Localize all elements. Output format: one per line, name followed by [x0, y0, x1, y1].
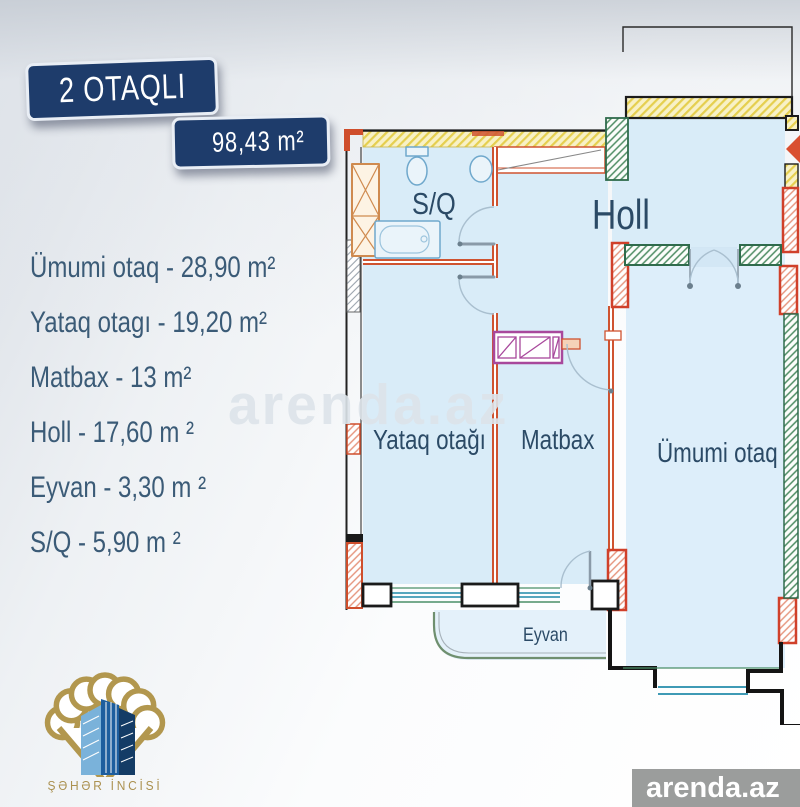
bottom-windows [363, 581, 618, 609]
total-area-label: 98,43 m² [211, 125, 304, 159]
flyer-canvas: 2 OTAQLI 98,43 m² Ümumi otaq - 28,90 m² … [0, 0, 800, 807]
label-balcony: Eyvan [523, 624, 568, 646]
beam-mark [472, 131, 504, 136]
label-bathroom: S/Q [412, 187, 456, 222]
rooms-count-badge: 2 OTAQLI [25, 57, 219, 122]
list-item: Yataq otagı - 19,20 m² [30, 295, 275, 350]
list-item: Holl - 17,60 m ² [30, 405, 275, 460]
list-item: Matbax - 13 m² [30, 350, 275, 405]
list-item: Ümumi otaq - 28,90 m² [30, 240, 275, 295]
window-jamb [592, 581, 618, 609]
sink-icon [470, 156, 492, 182]
site-brand-badge: arenda.az [632, 769, 800, 807]
toilet-tank [406, 147, 428, 156]
label-kitchen: Matbax [521, 425, 595, 456]
toilet-icon [407, 157, 427, 185]
label-hall: Holl [592, 193, 650, 239]
window-jamb [462, 584, 518, 606]
total-area-badge: 98,43 m² [171, 114, 330, 169]
agency-logo: ŞƏHƏR İNCİSİ [25, 642, 185, 802]
adjacent-unit-outline [623, 27, 792, 97]
hall-wardrobe [495, 147, 605, 173]
shell-building-logo-icon [25, 642, 185, 777]
window-jamb [363, 584, 391, 606]
agency-name: ŞƏHƏR İNCİSİ [31, 778, 178, 793]
entrance-arrow-icon [786, 135, 800, 163]
list-item: Eyvan - 3,30 m ² [30, 460, 275, 515]
rooms-count-label: 2 OTAQLI [58, 67, 186, 111]
list-item: S/Q - 5,90 m ² [30, 515, 275, 570]
room-area-list: Ümumi otaq - 28,90 m² Yataq otagı - 19,2… [30, 240, 337, 570]
label-living: Ümumi otaq [657, 438, 778, 469]
